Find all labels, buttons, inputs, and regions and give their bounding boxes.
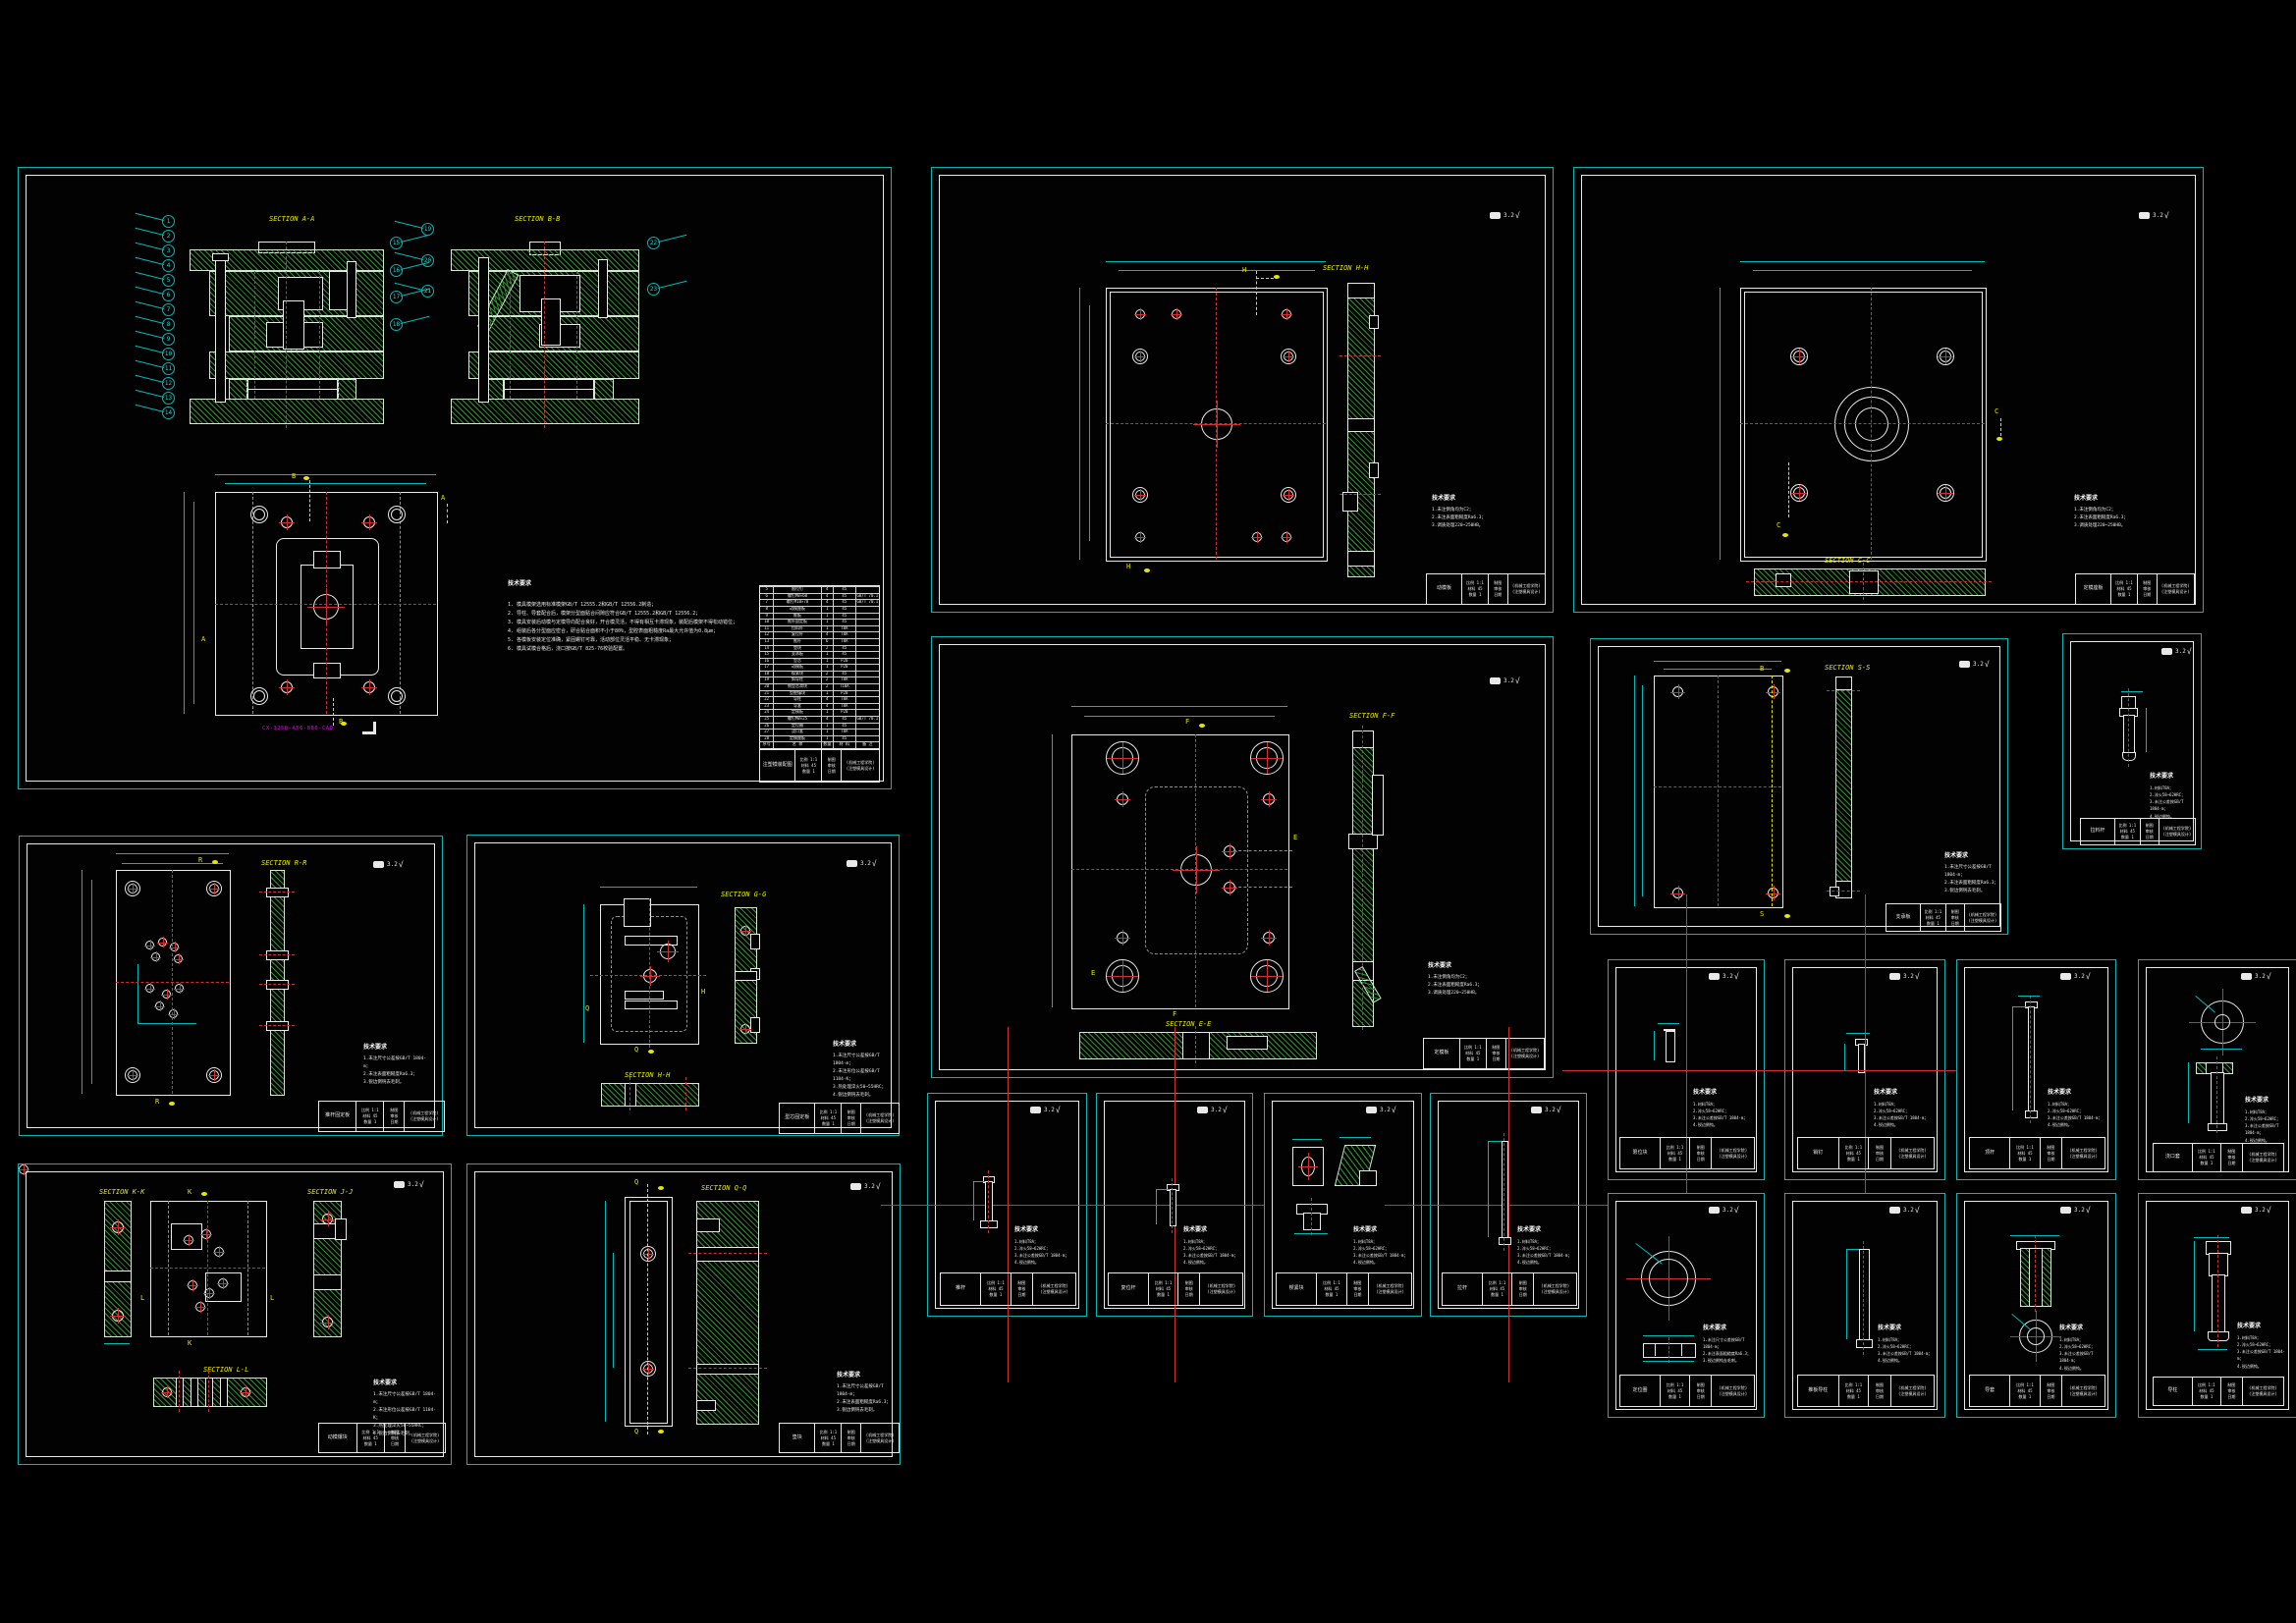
surface-finish-mark: 3.2√ — [1709, 1206, 1739, 1215]
return-pin-hole-inner — [1112, 747, 1133, 769]
part-name: 定模板 — [1424, 1039, 1459, 1068]
surface-finish-mark: 3.2√ — [850, 1182, 881, 1191]
dim-line — [1753, 270, 1972, 271]
section-label: SECTION H-H — [625, 1071, 670, 1079]
rod-base — [1499, 1237, 1511, 1245]
bom-row: 28定模座板145 — [760, 735, 879, 742]
pin-hole — [155, 1001, 164, 1010]
finish-value: 3.2 — [1503, 677, 1514, 684]
title-meta: 比例 1:1 材料 45 数量 1 — [1660, 1138, 1689, 1168]
surface-finish-mark: 3.2√ — [2060, 972, 2091, 981]
notch — [696, 1400, 716, 1411]
bom-cell: 材 料 — [833, 742, 855, 748]
check-icon: √ — [2086, 1206, 2091, 1215]
centerline — [1503, 1133, 1504, 1251]
balloon: 1 — [162, 215, 175, 228]
dim-line — [1488, 1141, 1489, 1237]
bom-row: 24定模板1P20 — [760, 709, 879, 716]
cavity-notch — [313, 551, 341, 568]
title-sign: 制图 审核 日期 — [2137, 574, 2157, 604]
section-path — [647, 1184, 648, 1434]
tech-notes: 技术要求1.材料T8A； 2.淬火58~62HRC； 3.未注公差按GB/T 1… — [1874, 1088, 1933, 1129]
sheet-locating-ring: 3.2√ 技术要求1.未注尺寸公差按GB/T 1804-m； 2.未注表面粗糙度… — [1608, 1193, 1765, 1418]
dim-line — [104, 1343, 130, 1344]
counterbore — [266, 1021, 289, 1031]
guide-hole-inner — [1284, 352, 1293, 361]
dim-line — [613, 1253, 614, 1368]
tech-notes-body: 1.未注尺寸公差按GB/T 1804-m； 2.未注表面粗糙度Ra6.3； 3.… — [1944, 864, 1999, 895]
title-meta: 比例 1:1 材料 45 数量 1 — [980, 1273, 1010, 1305]
title-org: (机械工程学院) (注塑模具设计) — [1890, 1138, 1934, 1168]
centerline — [544, 242, 545, 428]
hole — [322, 1214, 333, 1224]
tech-notes: 技术要求1.材料T8A； 2.淬火58~62HRC； 3.未注公差按GB/T 1… — [1878, 1324, 1935, 1365]
title-block: 复位杆 比例 1:1 材料 45 数量 1 制图 审核 日期 (机械工程学院) … — [1108, 1272, 1243, 1306]
section-arrow — [1274, 275, 1280, 279]
section-marker: S — [1760, 910, 1764, 918]
dim-line — [1720, 288, 1721, 560]
dim-line — [605, 1201, 606, 1422]
balloon: 15 — [390, 237, 403, 249]
tee-body — [1303, 1213, 1321, 1230]
bolt-hole-inner — [643, 1364, 653, 1374]
hole — [241, 1387, 250, 1397]
stamp-icon — [2139, 212, 2150, 219]
title-org: (机械工程学院) (注塑模具设计) — [1890, 1376, 1934, 1406]
centerline — [259, 984, 295, 985]
tech-notes: 技术要求1.材料T8A； 2.淬火58~62HRC； 3.未注公差按GB/T 1… — [2245, 1096, 2288, 1144]
dim-line — [583, 904, 584, 1043]
plate-inner — [629, 1201, 668, 1424]
bom-row: 16型芯1P20 — [760, 658, 879, 665]
centerline — [2035, 1235, 2036, 1312]
part-name: 导套 — [1970, 1376, 2009, 1406]
screw-hole — [1117, 932, 1128, 944]
section-marker: F — [1173, 1010, 1176, 1018]
tech-notes: 技术要求1.材料T8A； 2.淬火58~62HRC； 3.未注公差按GB/T 1… — [1693, 1088, 1752, 1129]
dim-line — [82, 870, 82, 1094]
balloon: 2 — [162, 230, 175, 243]
centerline — [116, 982, 229, 983]
title-meta: 比例 1:1 材料 45 数量 1 — [814, 1424, 841, 1452]
tech-notes-title: 技术要求 — [2048, 1088, 2105, 1099]
screw-hole — [281, 516, 293, 528]
title-sign: 制图 审核 日期 — [1689, 1138, 1711, 1168]
tech-notes: 技术要求1.材料T8A； 2.淬火58~62HRC； 3.未注公差按GB/T 1… — [1353, 1225, 1412, 1267]
section-arrow — [201, 1192, 207, 1196]
balloon: 7 — [162, 303, 175, 316]
dim-line — [973, 1181, 974, 1220]
check-icon: √ — [2187, 647, 2192, 656]
finish-value: 3.2 — [2074, 1207, 2085, 1214]
balloon: 19 — [421, 223, 434, 236]
sheet-ejector-rod: 3.2√ 技术要求1.材料T8A； 2.淬火58~62HRC； 3.未注公差按G… — [1956, 959, 2116, 1180]
section-marker: F — [1185, 718, 1189, 726]
bom-row: 27浇口套1T8A — [760, 729, 879, 735]
counterbore — [1776, 573, 1791, 587]
dim-line — [2121, 691, 2143, 692]
section-a-a-view — [190, 242, 382, 428]
title-sign: 制图 审核 日期 — [383, 1102, 404, 1131]
dim-line — [2188, 1062, 2189, 1123]
screw-hole — [1672, 686, 1683, 697]
section-arrow — [212, 860, 218, 864]
title-meta: 比例 1:1 材料 45 数量 1 — [2110, 574, 2137, 604]
tech-notes-title: 技术要求 — [1944, 851, 1999, 862]
section-label: SECTION S-S — [1825, 664, 1870, 672]
section-arrow — [169, 1102, 175, 1106]
tech-notes-body: 1.未注倒角均为C2； 2.未注表面粗糙度Ra6.3； 3.调质处理220~25… — [2074, 507, 2159, 530]
section-marker: E — [1293, 834, 1297, 841]
balloon-column-top: 2223 — [647, 237, 660, 296]
section-path — [447, 504, 448, 523]
section-marker: B — [292, 472, 296, 480]
sheet-fixed-clamp-plate: 3.2√ C C SECTION C-C 技术要求1.未注倒角均为C2； 2.未… — [1573, 167, 2204, 613]
stamp-icon — [1531, 1107, 1542, 1113]
title-block: 支承板 比例 1:1 材料 45 数量 1 制图 审核 日期 (机械工程学院) … — [1886, 903, 2001, 932]
section-marker: L — [270, 1294, 274, 1302]
dim-line — [1846, 1249, 1859, 1250]
part-name: 导柱 — [2154, 1378, 2192, 1405]
section-marker: E — [1091, 969, 1095, 977]
keyway — [624, 898, 651, 927]
slot — [191, 1378, 198, 1407]
hole — [214, 1247, 224, 1257]
centerline — [510, 271, 511, 399]
centerline — [1339, 355, 1381, 356]
section-label: SECTION A-A — [269, 215, 314, 223]
title-block: 导套 比例 1:1 材料 45 数量 1 制图 审核 日期 (机械工程学院) (… — [1969, 1375, 2105, 1407]
pin-hole — [151, 952, 160, 961]
tech-notes-title: 技术要求 — [363, 1043, 432, 1054]
balloon: 17 — [390, 291, 403, 303]
stamp-icon — [1490, 677, 1501, 684]
dim-line — [2201, 1049, 2242, 1050]
cut — [625, 1083, 636, 1107]
stamp-icon — [2161, 648, 2172, 655]
title-org: (机械工程学院) (注塑模具设计) — [1964, 904, 2000, 931]
pin-base — [980, 1220, 998, 1228]
tech-notes: 技术要求1.未注倒角均为C2； 2.未注表面粗糙度Ra6.3； 3.调质处理22… — [1428, 961, 1512, 998]
section-path — [1772, 676, 1773, 906]
title-sign: 制图 审核 日期 — [841, 1424, 860, 1452]
screw-hole — [1282, 309, 1291, 319]
part-name: 楔紧块 — [1277, 1273, 1316, 1305]
section-label: SECTION K-K — [99, 1188, 144, 1196]
sheet-fixed-platen: 3.2√ F F E E SECTION F-F SECTION E-E 技术要… — [931, 636, 1554, 1078]
return-pin-hole-inner — [1112, 965, 1133, 987]
dim-line — [1846, 1249, 1847, 1339]
slot — [625, 991, 664, 1000]
tech-notes: 技术要求1.未注尺寸公差按GB/T 1804-m； 2.未注表面粗糙度Ra6.3… — [1703, 1324, 1756, 1365]
check-icon: √ — [2164, 211, 2169, 220]
check-icon: √ — [2086, 972, 2091, 981]
section-marker: R — [198, 856, 202, 864]
cut — [1352, 730, 1374, 748]
pin-hole — [145, 941, 154, 949]
centerline — [150, 1268, 265, 1269]
check-icon: √ — [1734, 1206, 1739, 1215]
tech-notes-body: 1.材料T8A； 2.淬火58~62HRC； 3.未注公差按GB/T 1804-… — [2237, 1334, 2288, 1370]
check-icon: √ — [2267, 1206, 2271, 1215]
hole — [643, 969, 657, 983]
title-meta: 比例 1:1 材料 45 数量 1 — [1316, 1273, 1345, 1305]
check-icon: √ — [1557, 1106, 1561, 1114]
rod-body — [2123, 715, 2135, 754]
section-label: SECTION R-R — [261, 859, 306, 867]
sheet-moving-platen: 3.2√ H H SECTION H-H 技术要求1.未注倒角均为C2； 2.未… — [931, 167, 1554, 613]
title-block: 垫块 比例 1:1 材料 45 数量 1 制图 审核 日期 (机械工程学院) (… — [779, 1423, 900, 1453]
sheet-sprue-bushing: 3.2√ 技术要求1.材料T8A； 2.淬火58~62HRC； 3.未注公差按G… — [2138, 959, 2296, 1180]
dim-line — [2146, 708, 2147, 752]
finish-value: 3.2 — [1545, 1107, 1556, 1113]
tech-notes-title: 技术要求 — [1517, 1225, 1574, 1236]
balloon: 4 — [162, 259, 175, 272]
centerline — [259, 1025, 295, 1026]
finish-value: 3.2 — [387, 861, 398, 868]
centerline — [1718, 676, 1719, 906]
dim-line — [2194, 1241, 2195, 1331]
stamp-icon — [373, 861, 384, 868]
wedge-step — [1359, 1170, 1377, 1186]
stem-tip — [2208, 1123, 2227, 1131]
title-meta: 比例 1:1 材料 45 数量 1 — [1148, 1273, 1177, 1305]
tech-notes: 技术要求1.材料T8A； 2.淬火58~62HRC； 3.未注公差按GB/T 1… — [2048, 1088, 2105, 1129]
screw-hole — [1768, 686, 1778, 697]
centerline — [1746, 581, 1992, 582]
dim-line — [1156, 1189, 1170, 1190]
edge-line — [1681, 1343, 1682, 1356]
bom-row: 5限位钉445 — [760, 586, 879, 593]
bom-row: 26定位圈145 — [760, 723, 879, 730]
centerline — [1071, 869, 1287, 870]
tech-notes: 技术要求1.材料T8A； 2.淬火58~62HRC； 3.未注公差按GB/T 1… — [1014, 1225, 1073, 1267]
tech-notes: 技术要求1.未注倒角均为C2； 2.未注表面粗糙度Ra6.3； 3.调质处理22… — [2074, 494, 2159, 530]
title-meta: 比例 1:1 材料 45 数量 1 — [1459, 1039, 1486, 1068]
finish-value: 3.2 — [1211, 1107, 1222, 1113]
section-marker: H — [1242, 266, 1246, 274]
flange-hatch — [2196, 1062, 2207, 1074]
centerline — [2030, 996, 2031, 1123]
screw-hole — [1135, 309, 1145, 319]
pin-body — [1858, 1044, 1865, 1073]
tech-notes-title: 技术要求 — [1014, 1225, 1073, 1236]
tech-notes: 技术要求 1. 模具模架选用标准模架GB/T 12555.2和GB/T 1255… — [508, 570, 755, 663]
tech-notes: 技术要求1.材料T8A； 2.淬火58~62HRC； 3.未注公差按GB/T 1… — [2237, 1322, 2288, 1370]
dim-line — [1654, 1031, 1655, 1060]
finish-value: 3.2 — [2175, 648, 2186, 655]
edge-line — [1655, 1343, 1656, 1356]
screw-hole — [1768, 888, 1778, 898]
centerline — [1827, 891, 1860, 892]
bolt-hole-inner — [209, 884, 219, 893]
pin-hole — [174, 954, 183, 963]
surface-finish-mark: 3.2√ — [2241, 1206, 2271, 1215]
sheet-support-plate: 3.2√ B S SECTION S-S 技术要求1.未注尺寸公差按GB/T 1… — [1590, 638, 2008, 935]
pin-hole — [145, 984, 154, 993]
guide-hole-inner — [391, 509, 403, 520]
tech-notes-body: 1.材料T8A； 2.淬火58~62HRC； 3.未注公差按GB/T 1804-… — [1183, 1238, 1240, 1267]
dim-line — [184, 492, 185, 714]
cavity-notch — [313, 663, 341, 678]
screw-hole — [1263, 932, 1275, 944]
bom-row: 11拉料杆1T8A — [760, 625, 879, 632]
check-icon: √ — [1985, 660, 1990, 669]
tech-notes-body: 1.材料T8A； 2.淬火58~62HRC； 3.未注公差按GB/T 1804-… — [1517, 1238, 1574, 1267]
section-bar — [696, 1201, 759, 1425]
title-org: (机械工程学院) (注塑模具设计) — [1507, 574, 1545, 604]
title-sign: 制图 审核 日期 — [2140, 819, 2159, 844]
centerline — [319, 271, 320, 399]
bolt-hole-inner — [209, 1070, 219, 1080]
tech-notes-body: 1. 模具模架选用标准模架GB/T 12555.2和GB/T 12556.2制造… — [508, 601, 755, 654]
hole — [322, 1317, 333, 1327]
dim-line — [973, 1181, 985, 1182]
title-sign: 制图 审核 日期 — [2220, 1378, 2242, 1405]
slot — [220, 1378, 228, 1407]
tech-notes-body: 1.未注尺寸公差按GB/T 1804-m； 2.未注形位公差按GB/T 1184… — [833, 1053, 894, 1101]
dim-line — [1740, 261, 1985, 262]
bom-row: 19斜导柱2T8A — [760, 676, 879, 683]
section-label: SECTION H-H — [1323, 264, 1368, 272]
check-icon: √ — [2267, 972, 2271, 981]
title-block: 拉料杆 比例 1:1 材料 45 数量 1 制图 审核 日期 (机械工程学院) … — [2080, 818, 2196, 845]
dim-line — [1089, 305, 1090, 541]
title-meta: 比例 1:1 材料 45 数量 1 — [2114, 819, 2140, 844]
slot-hole — [1301, 1157, 1315, 1176]
part-name: 拉料杆 — [2081, 819, 2114, 844]
surface-finish-mark: 3.2√ — [847, 859, 877, 868]
sheet-assembly: SECTION A-A SECTION B-B — [18, 167, 892, 789]
section-path — [309, 480, 310, 521]
title-block: 导柱 比例 1:1 材料 45 数量 1 制图 审核 日期 (机械工程学院) (… — [2153, 1377, 2284, 1406]
title-meta: 比例 1:1 材料 45 数量 1 — [1461, 574, 1488, 604]
part-name: 顶杆 — [1970, 1138, 2009, 1168]
check-icon: √ — [1515, 211, 1520, 220]
side-hole — [1224, 882, 1235, 893]
balloon: 11 — [162, 362, 175, 375]
screw-hole — [1672, 888, 1683, 898]
dim-line — [1119, 270, 1315, 271]
title-block: 定模座板 比例 1:1 材料 45 数量 1 制图 审核 日期 (机械工程学院)… — [2075, 573, 2195, 605]
tech-notes-body: 1.材料T8A； 2.淬火58~62HRC； 3.未注公差按GB/T 1804-… — [2150, 784, 2193, 820]
dim-line — [1643, 1335, 1694, 1336]
tech-notes-body: 1.材料T8A； 2.淬火58~62HRC； 3.未注公差按GB/T 1804-… — [1874, 1101, 1933, 1129]
finish-value: 3.2 — [2255, 1207, 2266, 1214]
section-marker: A — [201, 635, 205, 643]
centerline — [685, 1077, 686, 1110]
screw-hole — [281, 681, 293, 693]
bolt-hole-inner — [1940, 487, 1951, 499]
dim-line — [137, 1023, 196, 1024]
plate-outline — [116, 870, 231, 1096]
centerline — [649, 898, 650, 1048]
leader — [1233, 887, 1292, 888]
bom-row: 17动模板1P20 — [760, 664, 879, 671]
pin-base — [1856, 1339, 1873, 1348]
cut — [735, 971, 757, 981]
dim-line — [193, 502, 194, 704]
tech-notes-title: 技术要求 — [1428, 961, 1512, 972]
sheet-dowel-pin: 3.2√ 技术要求1.材料T8A； 2.淬火58~62HRC； 3.未注公差按G… — [1784, 959, 1945, 1180]
title-org: (机械工程学院) (注塑模具设计) — [1533, 1273, 1576, 1305]
guide-hole-inner — [253, 690, 265, 702]
section-arrow — [1782, 533, 1788, 537]
dim-line — [1079, 288, 1080, 560]
finish-value: 3.2 — [1903, 1207, 1914, 1214]
surface-finish-mark: 3.2√ — [1959, 660, 1990, 669]
centerline — [1740, 423, 1985, 424]
hole — [740, 926, 750, 936]
title-block: 注塑模装配图 比例 1:1 材料 45 数量 1 制图 审核 日期 (机械工程学… — [759, 749, 880, 783]
centerline — [2216, 1056, 2217, 1133]
finish-value: 3.2 — [864, 1183, 875, 1190]
stamp-icon — [1709, 973, 1720, 980]
bom-cell: 名 称 — [773, 742, 820, 748]
bolt-hole-inner — [1793, 351, 1805, 362]
surface-finish-mark: 3.2√ — [1490, 211, 1520, 220]
balloon: 12 — [162, 377, 175, 390]
section-marker: Q — [634, 1046, 638, 1054]
tech-notes: 技术要求1.未注尺寸公差按GB/T 1804-m； 2.未注表面粗糙度Ra6.3… — [837, 1371, 894, 1415]
section-arrow — [1784, 914, 1790, 918]
section-label: SECTION Q-Q — [701, 1184, 746, 1192]
spacer — [229, 379, 248, 400]
sprue-bore — [1855, 407, 1888, 441]
title-meta: 比例 1:1 材料 45 数量 1 — [2009, 1376, 2039, 1406]
pin-body — [1859, 1249, 1870, 1341]
stamp-icon — [394, 1181, 405, 1188]
section-label: SECTION J-J — [307, 1188, 353, 1196]
title-sign: 制图 审核 日期 — [2220, 1144, 2242, 1171]
check-icon: √ — [399, 860, 404, 869]
title-org: (机械工程学院) (注塑模具设计) — [1032, 1273, 1075, 1305]
section-marker: B — [1760, 665, 1764, 673]
finish-value: 3.2 — [1722, 973, 1733, 980]
title-block: 动模镶块 比例 1:1 材料 45 数量 1 制图 审核 日期 (机械工程学院)… — [318, 1423, 446, 1453]
cad-workspace[interactable]: SECTION A-A SECTION B-B — [0, 0, 2296, 1623]
title-org: (机械工程学院) (注塑模具设计) — [2242, 1378, 2283, 1405]
support-plate — [468, 352, 639, 379]
stamp-icon — [1030, 1107, 1041, 1113]
dim-line — [2012, 1006, 2028, 1007]
tech-notes-title: 技术要求 — [1703, 1324, 1756, 1334]
balloon: 16 — [390, 264, 403, 277]
centerline — [259, 892, 295, 893]
section-arrow — [1144, 568, 1150, 572]
sheet-ejector-guide-pin: 3.2√ 技术要求1.材料T8A； 2.淬火58~62HRC； 3.未注公差按G… — [1784, 1193, 1945, 1418]
hole — [740, 1024, 750, 1034]
counterbore — [266, 888, 289, 897]
surface-finish-mark: 3.2√ — [2161, 647, 2192, 656]
tech-notes-body: 1.未注倒角均为C2； 2.未注表面粗糙度Ra6.3； 3.调质处理220~25… — [1428, 974, 1512, 998]
check-icon: √ — [876, 1182, 881, 1191]
bom-row: 21型腔镶块1P20 — [760, 690, 879, 697]
title-block: 推杆 比例 1:1 材料 45 数量 1 制图 审核 日期 (机械工程学院) (… — [940, 1272, 1076, 1306]
stamp-icon — [2060, 973, 2071, 980]
title-block: 顶杆 比例 1:1 材料 45 数量 1 制图 审核 日期 (机械工程学院) (… — [1969, 1137, 2105, 1169]
section-marker: A — [441, 494, 445, 502]
title-block: 推板导柱 比例 1:1 材料 45 数量 1 制图 审核 日期 (机械工程学院)… — [1797, 1375, 1935, 1407]
pin-hole — [158, 938, 167, 947]
title-org: (机械工程学院) (注塑模具设计) — [2061, 1376, 2105, 1406]
guide-hole-inner — [1284, 490, 1293, 500]
screw-hole — [1135, 532, 1145, 542]
title-sign: 制图 审核 日期 — [1511, 1273, 1533, 1305]
screw-hole — [1117, 793, 1128, 805]
finish-value: 3.2 — [1722, 1207, 1733, 1214]
title-org: (机械工程学院) (注塑模具设计) — [841, 750, 879, 782]
